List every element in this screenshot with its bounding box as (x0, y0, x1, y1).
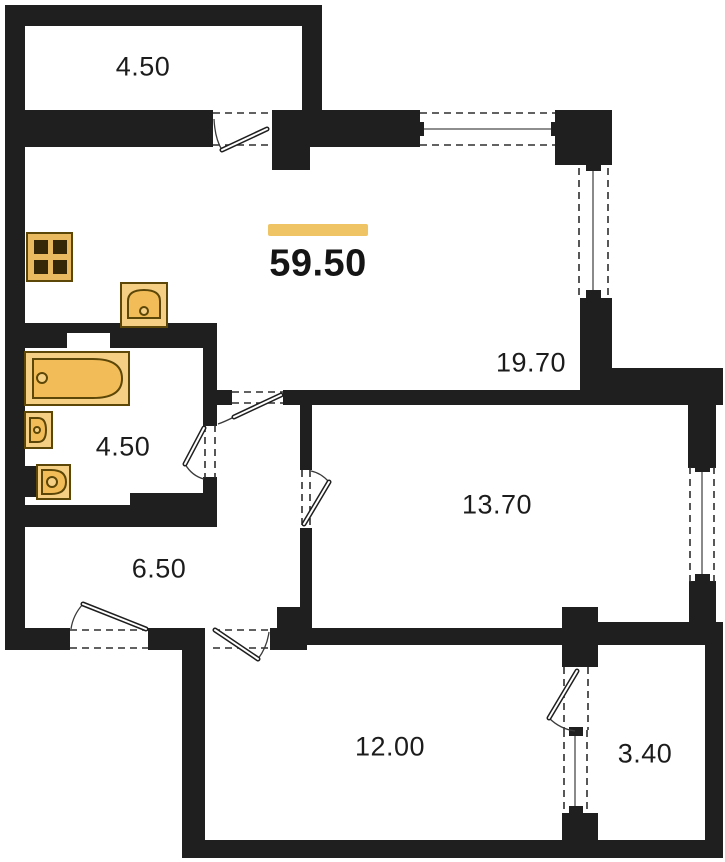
room-label-balcony-top: 4.50 (116, 52, 171, 83)
door-bottom-balcony (549, 667, 588, 731)
window-right-bedroom (690, 463, 714, 583)
room-label-living-kitchen: 19.70 (496, 348, 566, 379)
room-label-bathroom: 4.50 (96, 432, 151, 463)
window-bottom-balcony (564, 727, 587, 815)
door-top-balcony (213, 113, 272, 150)
door-bedroom (302, 470, 329, 528)
stove-icon (27, 233, 72, 281)
bathtub-icon (25, 352, 129, 405)
floor-plan: 4.50 59.50 19.70 4.50 13.70 6.50 12.00 3… (0, 0, 725, 862)
wash-basin-icon (25, 412, 52, 448)
toilet-icon (37, 465, 70, 499)
total-area-label: 59.50 (269, 243, 367, 286)
room-label-bedroom: 13.70 (462, 490, 532, 521)
door-entrance (70, 604, 148, 648)
window-right-living (579, 162, 608, 299)
room-label-balcony-bottom: 3.40 (618, 739, 673, 770)
room-label-bedroom-2: 12.00 (355, 732, 425, 763)
window-top (415, 113, 560, 145)
room-label-hallway: 6.50 (132, 554, 187, 585)
kitchen-sink-icon (121, 283, 167, 327)
door-bedroom-2 (213, 630, 270, 659)
total-area-accent-bar (268, 224, 368, 236)
door-bathroom (185, 425, 215, 479)
